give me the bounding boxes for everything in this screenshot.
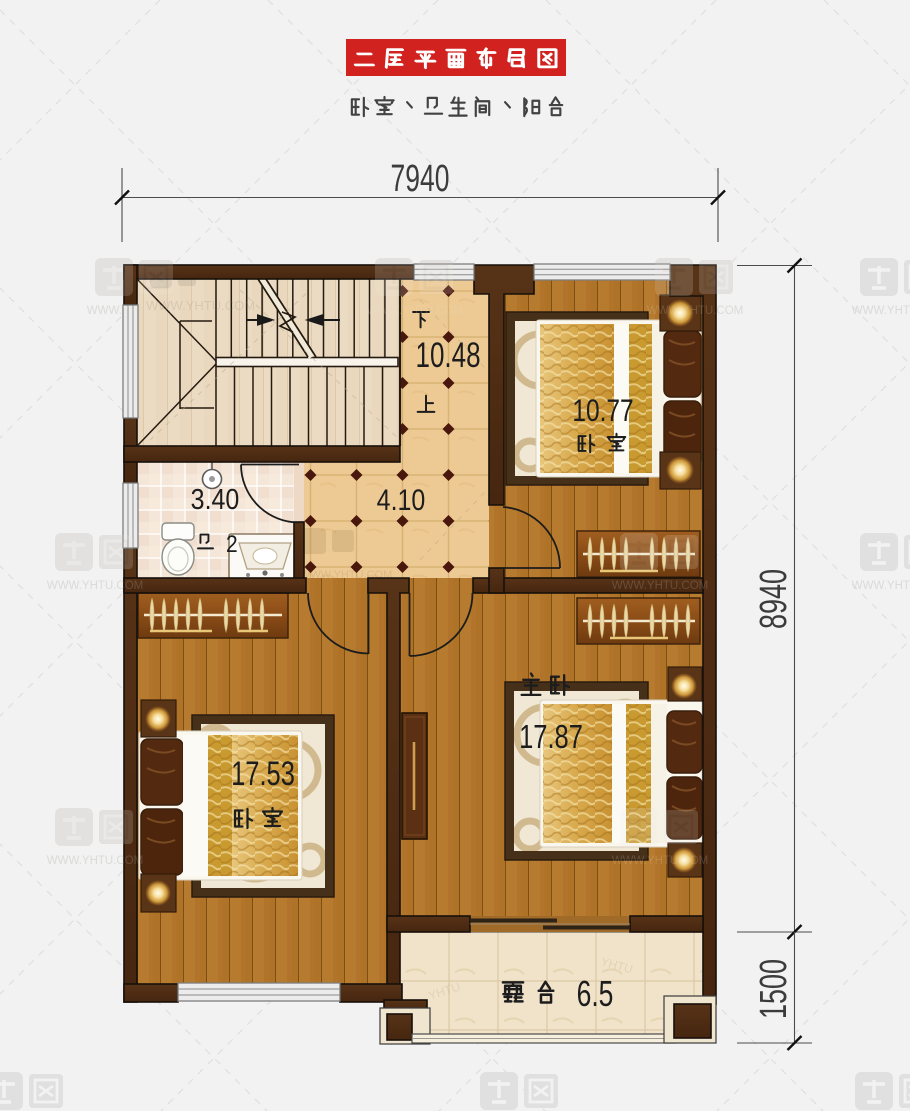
svg-text:10.48: 10.48	[415, 335, 480, 375]
svg-text:WWW.YHTU.COM: WWW.YHTU.COM	[47, 855, 143, 867]
svg-text:17.53: 17.53	[231, 755, 295, 793]
svg-text:6.5: 6.5	[577, 974, 614, 1014]
svg-text:WWW.YHTU.COM: WWW.YHTU.COM	[87, 305, 183, 317]
svg-text:WWW.YHTU.COM: WWW.YHTU.COM	[647, 305, 743, 317]
svg-text:WWW.YHTU.COM: WWW.YHTU.COM	[47, 580, 143, 592]
svg-text:4.10: 4.10	[377, 483, 426, 517]
svg-text:2: 2	[226, 531, 238, 558]
svg-text:7940: 7940	[391, 156, 450, 199]
svg-text:3.40: 3.40	[191, 483, 240, 515]
svg-text:17.87: 17.87	[519, 719, 583, 756]
svg-text:WWW.YHTU.COM: WWW.YHTU.COM	[612, 855, 708, 867]
svg-text:WWW.YHTU.COM: WWW.YHTU.COM	[367, 305, 463, 317]
svg-text:8940: 8940	[752, 569, 795, 629]
svg-text:WWW.YHTU.COM: WWW.YHTU.COM	[612, 580, 708, 592]
svg-text:10.77: 10.77	[572, 393, 633, 429]
svg-text:1500: 1500	[752, 959, 795, 1019]
